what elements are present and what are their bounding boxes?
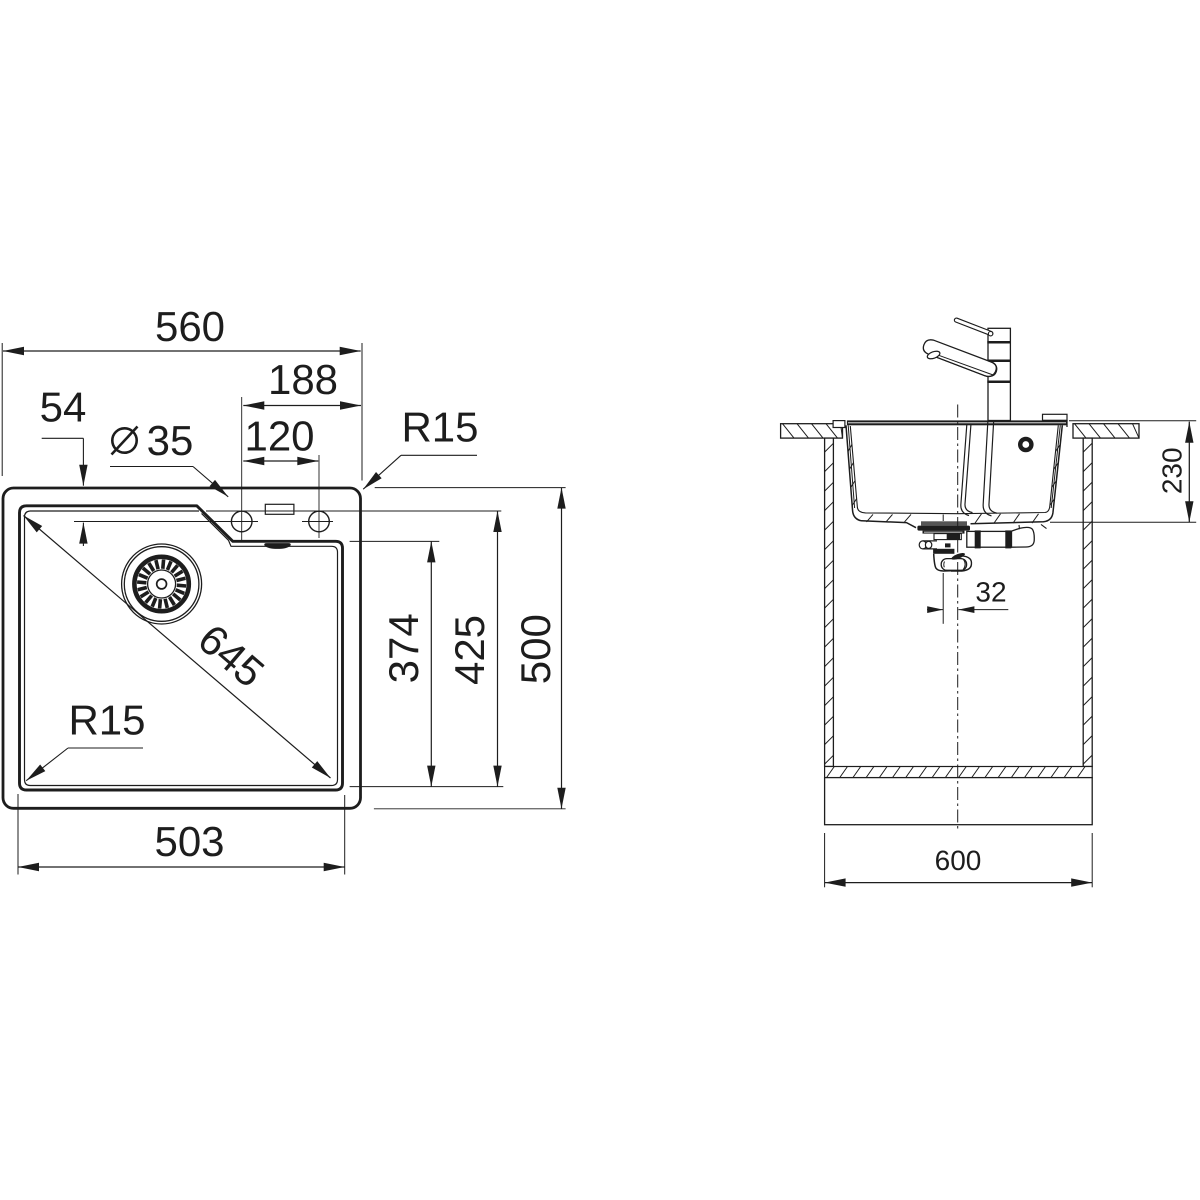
svg-text:374: 374 bbox=[380, 613, 427, 683]
svg-text:188: 188 bbox=[268, 356, 338, 403]
svg-text:230: 230 bbox=[1157, 447, 1188, 494]
svg-text:32: 32 bbox=[975, 576, 1006, 607]
svg-text:54: 54 bbox=[40, 383, 87, 430]
svg-text:560: 560 bbox=[155, 303, 225, 350]
svg-text:600: 600 bbox=[935, 845, 982, 876]
svg-text:35: 35 bbox=[147, 417, 194, 464]
svg-text:503: 503 bbox=[154, 818, 224, 865]
svg-text:R15: R15 bbox=[401, 403, 478, 450]
svg-text:R15: R15 bbox=[68, 696, 145, 743]
svg-text:425: 425 bbox=[446, 615, 493, 685]
svg-text:120: 120 bbox=[244, 412, 314, 459]
svg-text:500: 500 bbox=[512, 614, 559, 684]
